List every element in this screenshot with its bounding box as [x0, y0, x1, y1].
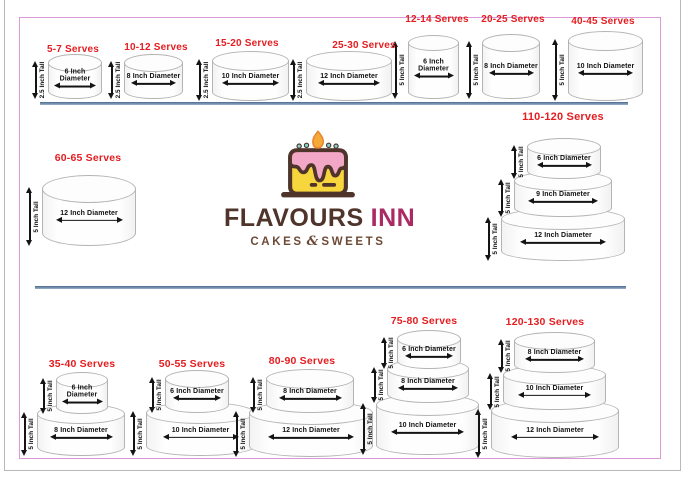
diameter-dimension: 12 Inch Diameter — [492, 426, 618, 438]
diameter-dimension: 8 Inch Diameter — [38, 427, 124, 439]
height-arrow — [293, 64, 295, 96]
diameter-dimension: 12 Inch Diameter — [307, 73, 391, 84]
brand-name: FLAVOURSINN — [224, 204, 412, 233]
serves-title: 5-7 Serves — [47, 44, 99, 55]
cake-tier: 10 Inch Diameter — [568, 40, 643, 101]
height-label: 5 Inch Tall — [32, 189, 42, 245]
diameter-dimension: 8 Inch Diameter — [515, 349, 594, 361]
cake-tier: 6 Inch Diameter — [48, 62, 102, 99]
cake-tier-top-ellipse — [568, 31, 643, 51]
diameter-dimension: 6 Inch Diameter — [409, 59, 458, 78]
page-edge-bottom — [4, 470, 681, 471]
height-arrow — [374, 372, 376, 398]
cake-tier-top-ellipse — [306, 51, 392, 71]
height-arrow — [478, 414, 480, 453]
diameter-arrow — [67, 402, 98, 404]
page-edge-left — [4, 0, 5, 471]
height-arrow — [43, 383, 45, 409]
serves-title: 35-40 Serves — [49, 358, 116, 370]
diameter-label: 8 Inch Diameter — [267, 388, 353, 395]
cake-serving-size-poster: FLAVOURSINN CAKES&SWEETS 5-7 Serves6 Inc… — [0, 0, 684, 478]
diameter-arrow — [410, 356, 448, 358]
diameter-arrow — [523, 394, 586, 396]
diameter-dimension: 12 Inch Diameter — [250, 427, 372, 439]
cake-tier: 12 Inch Diameter — [249, 412, 373, 457]
diameter-label: 6 Inch Diameter — [57, 385, 107, 399]
diameter-arrow — [323, 83, 375, 85]
cake-tier: 8 Inch Diameter — [482, 42, 540, 99]
diameter-dimension: 10 Inch Diameter — [213, 73, 288, 84]
cake-tier: 6 Inch Diameter — [408, 42, 459, 99]
cake-tier: 6 Inch Diameter — [56, 379, 108, 414]
cake-tier-top-ellipse — [42, 175, 136, 203]
height-label: 5 Inch Tall — [472, 42, 482, 98]
diameter-arrow — [168, 436, 234, 438]
height-label: 2.5 Inch Tall — [296, 52, 306, 108]
cake-tier: 10 Inch Diameter — [212, 60, 289, 101]
serves-title: 75-80 Serves — [391, 315, 458, 327]
cake-tier: 8 Inch Diameter — [124, 62, 183, 99]
height-arrow — [152, 382, 154, 408]
height-label: 5 Inch Tall — [558, 42, 568, 98]
height-label: 5 Inch Tall — [155, 367, 165, 423]
height-label: 5 Inch Tall — [504, 328, 514, 384]
brand-name-inn: INN — [371, 204, 416, 232]
diameter-dimension: 6 Inch Diameter — [528, 155, 600, 167]
cake-tier: 10 Inch Diameter — [503, 374, 606, 410]
cake-tier-top-ellipse — [212, 51, 289, 71]
serves-title: 50-55 Serves — [159, 358, 226, 370]
diameter-arrow — [227, 83, 274, 85]
diameter-label: 10 Inch Diameter — [569, 63, 642, 70]
diameter-label: 8 Inch Diameter — [388, 378, 468, 385]
height-arrow — [501, 184, 503, 212]
diameter-arrow — [516, 436, 594, 438]
height-arrow — [29, 192, 31, 241]
cake-with-flame-icon — [277, 128, 359, 202]
height-arrow — [24, 417, 26, 451]
cake-tier: 12 Inch Diameter — [491, 410, 619, 458]
cake-tier-top-ellipse — [124, 54, 183, 72]
height-arrow — [199, 64, 201, 96]
diameter-dimension: 6 Inch Diameter — [49, 69, 101, 88]
cake-tier-top-ellipse — [482, 34, 540, 52]
height-arrow — [384, 342, 386, 364]
diameter-arrow — [419, 76, 449, 78]
tagline-sweets: SWEETS — [321, 236, 385, 248]
height-label: 5 Inch Tall — [136, 406, 146, 462]
diameter-label: 8 Inch Diameter — [515, 349, 594, 356]
diameter-dimension: 6 Inch Diameter — [398, 346, 460, 358]
height-arrow — [469, 46, 471, 94]
page-edge-right — [680, 0, 681, 471]
height-label: 5 Inch Tall — [27, 406, 37, 462]
diameter-arrow — [136, 83, 171, 85]
cake-tier-top-ellipse — [266, 369, 354, 389]
diameter-label: 8 Inch Diameter — [125, 73, 182, 80]
diameter-label: 8 Inch Diameter — [38, 427, 124, 434]
diameter-label: 6 Inch Diameter — [166, 388, 228, 395]
serves-title: 12-14 Serves — [405, 14, 469, 25]
height-label: 2.5 Inch Tall — [114, 52, 124, 108]
diameter-dimension: 8 Inch Diameter — [483, 63, 539, 74]
diameter-label: 6 Inch Diameter — [49, 69, 101, 83]
diameter-arrow — [533, 201, 593, 203]
section-divider-bottom — [35, 286, 626, 289]
diameter-label: 12 Inch Diameter — [250, 427, 372, 434]
cake-tier: 9 Inch Diameter — [514, 180, 612, 217]
cake-tier: 8 Inch Diameter — [514, 340, 595, 373]
height-label: 5 Inch Tall — [239, 406, 249, 462]
diameter-label: 6 Inch Diameter — [528, 155, 600, 162]
serves-title: 80-90 Serves — [269, 355, 336, 367]
serves-title: 20-25 Serves — [481, 14, 545, 25]
diameter-arrow — [55, 437, 108, 439]
diameter-dimension: 12 Inch Diameter — [43, 209, 135, 221]
height-arrow — [35, 66, 37, 94]
cake-tier: 6 Inch Diameter — [397, 338, 461, 369]
height-label: 2.5 Inch Tall — [38, 52, 48, 108]
diameter-label: 10 Inch Diameter — [147, 426, 254, 433]
cake-tier: 12 Inch Diameter — [306, 60, 392, 101]
diameter-label: 10 Inch Diameter — [213, 73, 288, 80]
diameter-arrow — [273, 437, 349, 439]
height-label: 5 Inch Tall — [517, 134, 527, 190]
diameter-label: 6 Inch Diameter — [409, 59, 458, 73]
height-label: 5 Inch Tall — [481, 406, 491, 462]
height-label: 5 Inch Tall — [256, 367, 266, 423]
height-arrow — [111, 66, 113, 94]
height-arrow — [133, 416, 135, 451]
diameter-arrow — [178, 398, 216, 400]
height-arrow — [514, 150, 516, 174]
height-arrow — [253, 382, 255, 408]
diameter-label: 10 Inch Diameter — [377, 422, 478, 429]
cake-tier: 6 Inch Diameter — [527, 146, 601, 179]
diameter-arrow — [59, 86, 91, 88]
diameter-dimension: 12 Inch Diameter — [502, 232, 624, 244]
diameter-dimension: 10 Inch Diameter — [377, 422, 478, 434]
height-arrow — [501, 344, 503, 368]
brand-name-flavours: FLAVOURS — [224, 204, 364, 232]
diameter-dimension: 8 Inch Diameter — [267, 388, 353, 400]
cake-tier-top-ellipse — [527, 138, 601, 156]
serves-title: 40-45 Serves — [571, 16, 635, 27]
brand-tagline: CAKES&SWEETS — [224, 234, 412, 249]
height-arrow — [490, 378, 492, 405]
height-arrow — [395, 46, 397, 94]
cake-tier-top-ellipse — [165, 370, 229, 388]
diameter-arrow — [396, 432, 459, 434]
diameter-arrow — [542, 165, 587, 167]
brand-logo: FLAVOURSINN CAKES&SWEETS — [224, 128, 412, 249]
diameter-label: 6 Inch Diameter — [398, 346, 460, 353]
serves-title: 120-130 Serves — [506, 316, 585, 328]
diameter-dimension: 6 Inch Diameter — [57, 385, 107, 404]
height-label: 2.5 Inch Tall — [202, 52, 212, 108]
section-divider-top — [40, 102, 628, 105]
diameter-label: 12 Inch Diameter — [43, 209, 135, 216]
diameter-arrow — [284, 398, 337, 400]
serves-title: 15-20 Serves — [215, 38, 279, 49]
diameter-dimension: 10 Inch Diameter — [504, 384, 605, 396]
diameter-label: 12 Inch Diameter — [307, 73, 391, 80]
diameter-dimension: 10 Inch Diameter — [147, 426, 254, 438]
serves-title: 60-65 Serves — [55, 152, 122, 164]
height-arrow — [363, 408, 365, 450]
height-arrow — [555, 44, 557, 96]
cake-tier: 8 Inch Diameter — [266, 378, 354, 413]
tagline-cakes: CAKES — [250, 236, 303, 248]
height-label: 5 Inch Tall — [387, 325, 397, 381]
diameter-label: 12 Inch Diameter — [502, 232, 624, 239]
cake-tier: 6 Inch Diameter — [165, 378, 229, 413]
height-label: 5 Inch Tall — [366, 401, 376, 457]
height-arrow — [236, 416, 238, 452]
serves-title: 25-30 Serves — [332, 40, 396, 51]
diameter-label: 10 Inch Diameter — [504, 384, 605, 391]
diameter-label: 12 Inch Diameter — [492, 426, 618, 433]
cake-tier: 10 Inch Diameter — [376, 404, 479, 455]
serves-title: 110-120 Serves — [522, 111, 604, 123]
cake-tier: 12 Inch Diameter — [42, 188, 136, 246]
cake-tier: 8 Inch Diameter — [387, 368, 469, 403]
diameter-label: 8 Inch Diameter — [483, 63, 539, 70]
diameter-label: 9 Inch Diameter — [515, 191, 611, 198]
diameter-arrow — [530, 359, 579, 361]
diameter-dimension: 9 Inch Diameter — [515, 191, 611, 203]
diameter-dimension: 10 Inch Diameter — [569, 63, 642, 74]
cake-tier-top-ellipse — [408, 35, 459, 51]
diameter-arrow — [494, 73, 529, 75]
diameter-arrow — [403, 388, 453, 390]
diameter-arrow — [583, 73, 628, 75]
height-arrow — [488, 222, 490, 256]
height-label: 5 Inch Tall — [398, 42, 408, 98]
height-label: 5 Inch Tall — [46, 368, 56, 424]
diameter-dimension: 8 Inch Diameter — [388, 378, 468, 390]
diameter-dimension: 8 Inch Diameter — [125, 73, 182, 84]
diameter-arrow — [61, 219, 118, 221]
cake-tier: 12 Inch Diameter — [501, 218, 625, 261]
cake-tier-top-ellipse — [514, 332, 595, 350]
height-label: 5 Inch Tall — [491, 211, 501, 267]
diameter-dimension: 6 Inch Diameter — [166, 388, 228, 400]
diameter-arrow — [525, 242, 601, 244]
tagline-ampersand: & — [307, 234, 319, 249]
serves-title: 10-12 Serves — [124, 42, 188, 53]
